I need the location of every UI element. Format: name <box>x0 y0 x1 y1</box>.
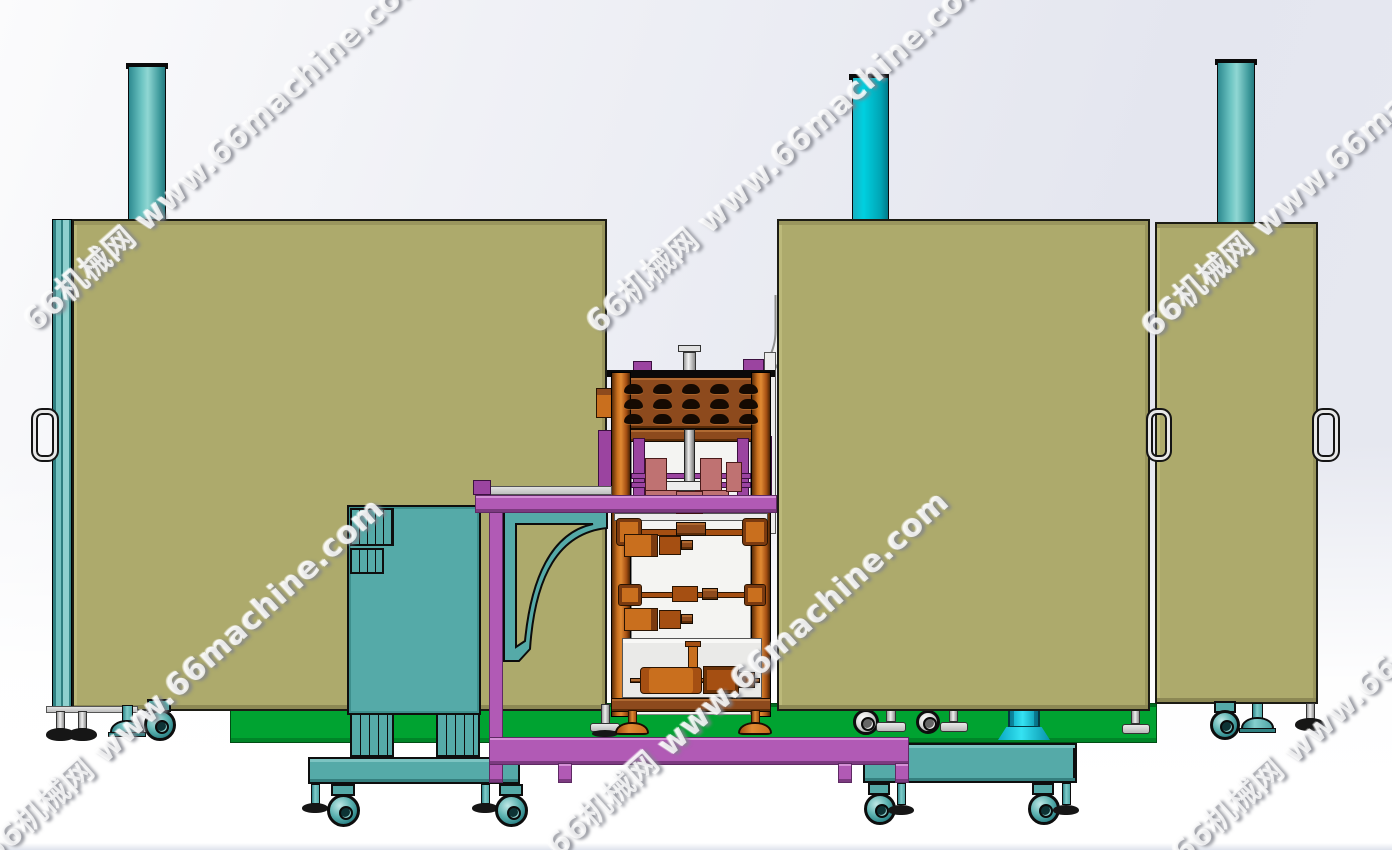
cad-render-viewport: 66机械网 www.66machine.com 66机械网 www.66mach… <box>0 0 1392 850</box>
machine-foot-orange-left <box>615 710 649 738</box>
gearshaft-2 <box>681 614 693 624</box>
conveyor-top-strip <box>475 486 612 495</box>
right-cart-foot-2 <box>1053 783 1079 823</box>
gearmotor-1 <box>624 534 658 557</box>
cabinet-bracket-br <box>436 713 480 757</box>
floor-shading <box>0 843 1392 850</box>
purple-lower-beam <box>489 737 909 765</box>
left-mushroom-foot <box>108 705 146 739</box>
left-caster <box>143 699 177 743</box>
purple-leg-2 <box>838 763 852 783</box>
right-chimney <box>1217 62 1255 225</box>
right-cart-foot-1 <box>888 783 914 823</box>
machine-header-cap <box>607 370 775 377</box>
top-cylinder-cap <box>678 345 701 352</box>
coupling-1 <box>676 522 706 536</box>
cabinet-corner-bracket-tl2 <box>350 548 384 574</box>
cabinet-caster-1 <box>326 784 362 830</box>
left-foot-2 <box>68 711 98 743</box>
gearbox-1 <box>659 536 681 555</box>
coupling-2 <box>672 586 698 602</box>
machine-foot-orange-right <box>738 710 772 738</box>
far-right-caster <box>1210 701 1242 741</box>
conveyor-left-cap <box>473 480 491 495</box>
far-right-door-handle-left[interactable] <box>1148 410 1170 460</box>
cabinet-caster-2 <box>494 784 530 830</box>
coupling-2b <box>702 588 718 600</box>
header-vent-slots <box>624 384 758 424</box>
far-right-enclosure-panel <box>1155 222 1318 704</box>
conveyor-purple-beam <box>475 495 777 513</box>
roller-2-right <box>744 584 766 606</box>
gearshaft-1 <box>681 540 693 550</box>
gearmotor-2 <box>624 608 658 631</box>
left-door-handle[interactable] <box>33 410 57 460</box>
purple-leg-1 <box>558 763 572 783</box>
teal-gusset-bracket <box>503 511 609 663</box>
purple-beam-endcap <box>895 763 909 783</box>
pump-body <box>640 667 702 694</box>
gearbox-2 <box>659 610 681 629</box>
far-right-mushroom-foot <box>1239 703 1276 735</box>
left-chimney <box>128 66 166 222</box>
middle-chimney <box>852 77 889 222</box>
pump-coupling <box>739 672 755 688</box>
side-block-left <box>596 388 612 418</box>
far-right-door-handle-right[interactable] <box>1314 410 1338 460</box>
cabinet-foot-1 <box>302 784 328 824</box>
pump-motor <box>703 666 739 694</box>
left-door-edge <box>52 219 72 711</box>
cabinet-bracket-bl <box>350 713 394 757</box>
roller-2-left <box>618 584 642 606</box>
piston-rod <box>684 429 695 483</box>
right-middle-enclosure-panel <box>777 219 1150 711</box>
clamp-far-right <box>726 462 742 492</box>
pulley-1-right <box>742 518 768 546</box>
cabinet-corner-bracket-tl <box>350 508 394 546</box>
far-right-foot <box>1295 703 1325 733</box>
